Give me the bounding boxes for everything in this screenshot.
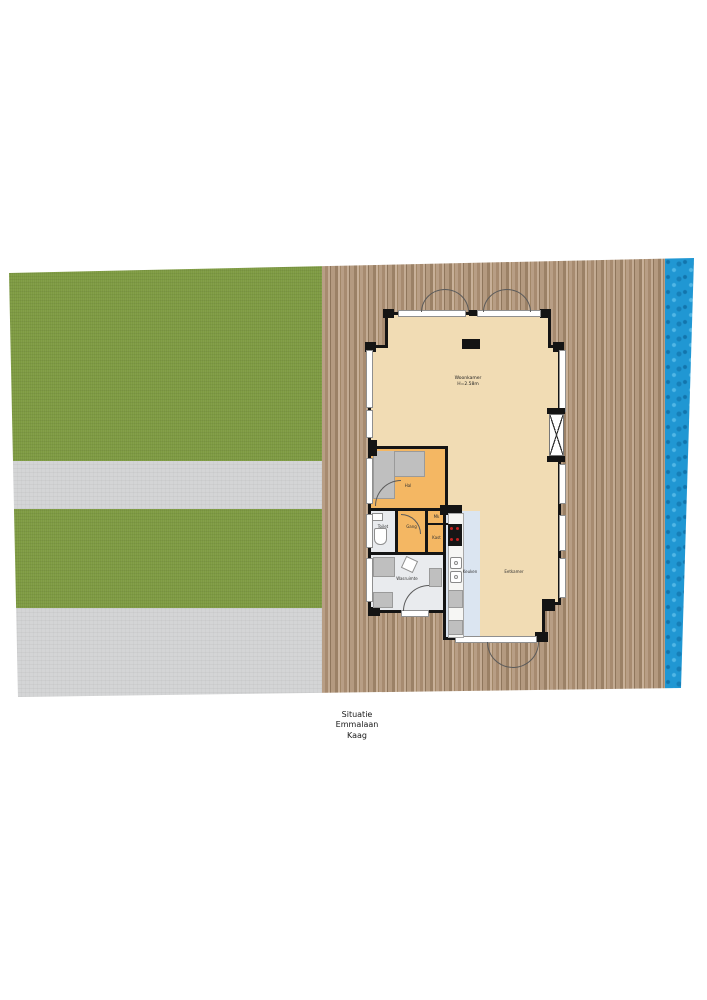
room-woonkamer-floor: [371, 345, 558, 452]
door-opening: [401, 610, 429, 617]
room-label-wasruimte: Wasruimte: [371, 576, 443, 581]
wall-segment: [548, 312, 551, 348]
caption-line-street: Emmalaan: [297, 720, 417, 730]
window: [366, 350, 373, 408]
window: [559, 558, 566, 598]
toilet-icon: [374, 528, 387, 545]
room-open-floor: [448, 452, 558, 514]
room-label-mk: Mk: [428, 514, 445, 519]
window: [559, 464, 566, 504]
room-label-hal: Hal: [371, 483, 445, 488]
wall-segment: [445, 449, 448, 511]
path-upper: [9, 461, 322, 509]
room-label-gang: Gang: [396, 524, 427, 529]
wall-segment: [371, 446, 448, 449]
washer-icon: [373, 557, 395, 577]
parcel: Woonkamer H=2.58m Hal Toilet Gang Mk Kas…: [9, 258, 694, 697]
room-label-woonkamer: Woonkamer H=2.58m: [408, 376, 528, 387]
room-label-woonkamer-note: H=2.58m: [408, 382, 528, 388]
room-label-toilet: Toilet: [369, 524, 397, 529]
wall-segment: [547, 456, 565, 462]
sink-icon: [450, 557, 462, 569]
wall-segment: [368, 508, 448, 511]
appliance-icon: [448, 590, 463, 608]
wall-segment: [368, 552, 446, 555]
wall-segment: [443, 511, 446, 640]
caption-line-situatie: Situatie: [297, 710, 417, 720]
appliance-icon: [448, 620, 463, 635]
path-lower: [9, 608, 322, 697]
wall-segment: [385, 312, 388, 348]
window: [559, 515, 566, 551]
caption-line-place: Kaag: [297, 731, 417, 741]
room-eetkamer-floor: [480, 511, 558, 605]
stove-icon: [448, 524, 462, 546]
window: [366, 458, 373, 504]
chimney-duct-icon: [549, 414, 564, 456]
caption: Situatie Emmalaan Kaag: [297, 710, 417, 741]
wall-segment: [395, 511, 398, 552]
room-label-keuken: Keuken: [457, 569, 483, 574]
appliance-icon: [373, 592, 393, 608]
window: [366, 410, 373, 438]
fireplace-icon: [462, 339, 480, 349]
wall-segment: [469, 310, 477, 316]
room-label-eetkamer: Eetkamer: [482, 569, 546, 574]
site-plan-canvas: Woonkamer H=2.58m Hal Toilet Gang Mk Kas…: [0, 0, 707, 1000]
window: [559, 350, 566, 412]
water-area: [665, 258, 694, 697]
washbasin-icon: [372, 513, 383, 521]
room-label-kast: Kast: [428, 535, 445, 540]
